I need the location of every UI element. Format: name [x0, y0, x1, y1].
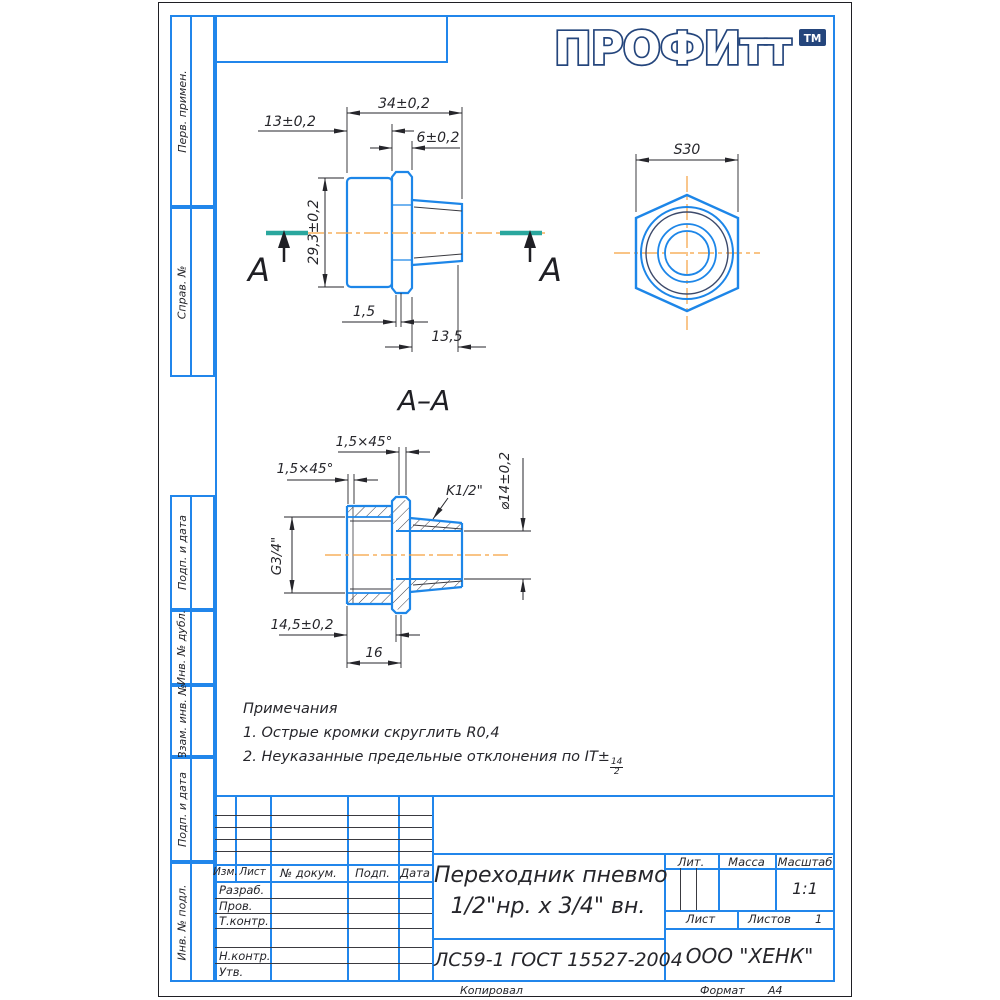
- dim-chamfer-top: 1,5×45°: [336, 434, 393, 450]
- thread-female-label: G3/4": [269, 537, 285, 575]
- col-podp: Подп.: [347, 866, 398, 880]
- material: ЛС59-1 ГОСТ 15527-2004: [434, 949, 662, 971]
- front-view: A A 34±0,2 13±0,2 6±0,2 29,3±0,2: [246, 96, 562, 352]
- notes-title: Примечания: [243, 698, 623, 722]
- thread-male-label: K1/2": [446, 483, 483, 499]
- notes-block: Примечания 1. Острые кромки скруглить R0…: [243, 698, 623, 778]
- col-doc: № докум.: [270, 866, 347, 880]
- tb-thin-row: [215, 928, 432, 929]
- col-list: Лист: [235, 866, 270, 878]
- col-izm: Изм.: [213, 866, 237, 878]
- tb-line: [737, 910, 739, 928]
- row-tkontr: Т.контр.: [219, 914, 269, 928]
- note-2: 2. Неуказанные предельные отклонения по …: [243, 746, 623, 778]
- sheets-label: Листов: [748, 912, 791, 926]
- dim-hex-width: 6±0,2: [417, 130, 460, 146]
- scale-value: 1:1: [775, 879, 835, 898]
- dim-total: 34±0,2: [378, 96, 430, 112]
- tb-line: [432, 938, 666, 940]
- tb-thin-row: [215, 827, 432, 828]
- dim-taper-len: 13,5: [431, 329, 462, 345]
- sheets-value: 1: [815, 912, 822, 926]
- dim-chamfer-left: 1,5×45°: [277, 461, 334, 477]
- part-title-line2: 1/2"нр. х 3/4" вн.: [434, 892, 662, 923]
- part-title: Переходник пневмо 1/2"нр. х 3/4" вн.: [434, 861, 662, 923]
- company: ООО "ХЕНК": [664, 944, 835, 968]
- dim-wrench-size: S30: [674, 142, 701, 158]
- copied-label: Копировал: [460, 984, 523, 997]
- tb-line: [215, 795, 835, 797]
- tb-line: [664, 928, 835, 930]
- part-title-line1: Переходник пневмо: [434, 861, 662, 892]
- mass-label: Масса: [718, 855, 775, 869]
- tb-line: [347, 795, 349, 982]
- lit-subcolumn: [680, 868, 681, 910]
- tb-thin-row: [215, 963, 432, 964]
- tb-thin-row: [215, 947, 432, 948]
- tb-line: [398, 795, 400, 982]
- drawing-sheet: Перв. примен. Справ. № Подп. и дата Инв.…: [0, 0, 1000, 1000]
- tb-thin-row: [215, 839, 432, 840]
- tb-thin-row: [215, 815, 432, 816]
- row-prov: Пров.: [219, 899, 252, 913]
- note-2-fraction: 142: [610, 758, 623, 778]
- dim-bore: ⌀14±0,2: [497, 452, 513, 510]
- row-razrab: Разраб.: [219, 883, 264, 897]
- note-1: 1. Острые кромки скруглить R0,4: [243, 722, 623, 746]
- sheet-label: Лист: [664, 912, 737, 926]
- format-value: А4: [768, 984, 783, 997]
- format-label: Формат: [700, 984, 745, 997]
- section-letter-right: A: [538, 251, 562, 289]
- dim-chamfer: 1,5: [353, 304, 375, 320]
- dim-thread-depth: 14,5±0,2: [271, 617, 334, 633]
- dim-body: 13±0,2: [264, 114, 316, 130]
- col-data: Дата: [398, 866, 432, 880]
- section-view: A–A: [269, 384, 531, 668]
- section-title: A–A: [396, 384, 450, 417]
- dim-body-len: 16: [365, 645, 382, 661]
- dim-od: 29,3±0,2: [306, 199, 322, 264]
- lit-subcolumn: [696, 868, 697, 910]
- drawing-views: A A 34±0,2 13±0,2 6±0,2 29,3±0,2: [0, 0, 1000, 1000]
- lit-label: Лит.: [664, 855, 718, 869]
- row-utv: Утв.: [219, 965, 243, 979]
- hex-end-view: S30: [614, 142, 760, 330]
- tb-thin-row: [215, 851, 432, 852]
- section-letter-left: A: [246, 251, 270, 289]
- scale-label: Масштаб: [775, 855, 835, 869]
- row-nkontr: Н.контр.: [219, 949, 270, 963]
